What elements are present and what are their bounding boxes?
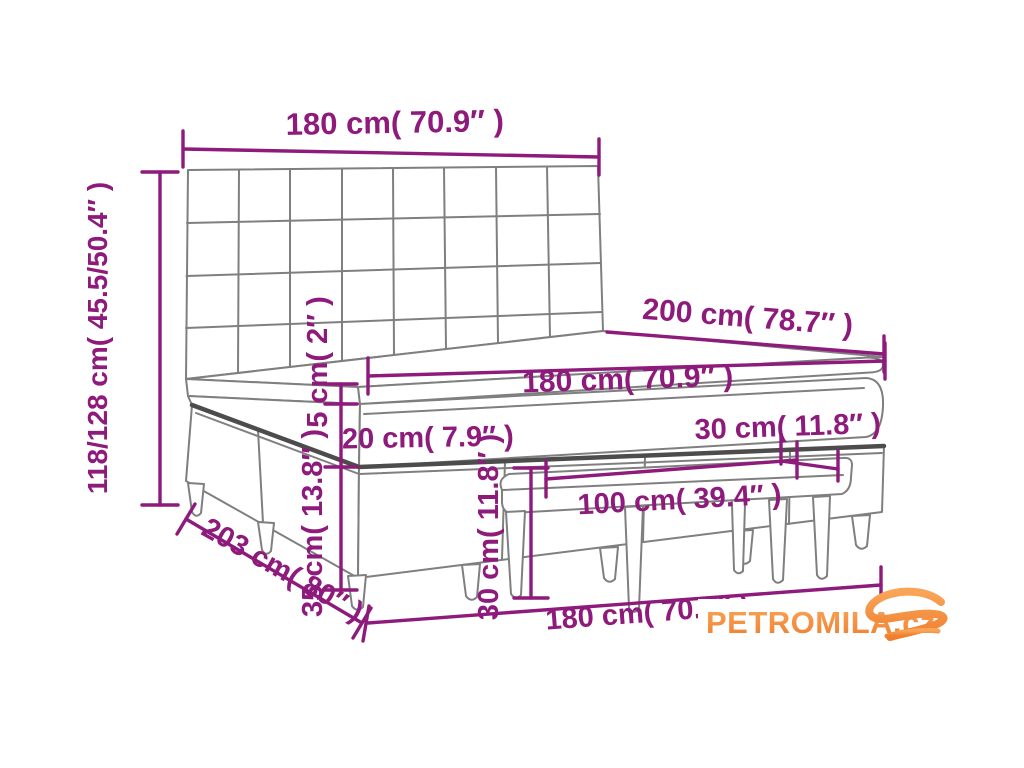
petromila-watermark: PETROMILA.cz [698,592,960,649]
dimension-label-headboard-width: 180 cm( 70.9″ ) [285,103,504,142]
dimension-label-mattress-width: 180 cm( 70.9″ ) [522,360,734,400]
dimension-label-bench-depth: 30 cm( 11.8″ ) [694,408,881,446]
dimension-label-bench-height: 30 cm( 11.8″ ) [473,434,505,620]
dimension-label-mattress-length: 200 cm( 78.7″ ) [641,293,854,342]
bed-dimension-diagram: 180 cm( 70.9″ ) 118/128 cm( 45.5/50.4″ )… [0,0,1024,768]
dimension-label-bed-height: 118/128 cm( 45.5/50.4″ ) [82,182,113,494]
bed-dimension-diagram-page: 180 cm( 70.9″ ) 118/128 cm( 45.5/50.4″ )… [0,0,1024,768]
dimension-label-topper-thickness: 5 cm( 2″ ) [302,296,334,428]
